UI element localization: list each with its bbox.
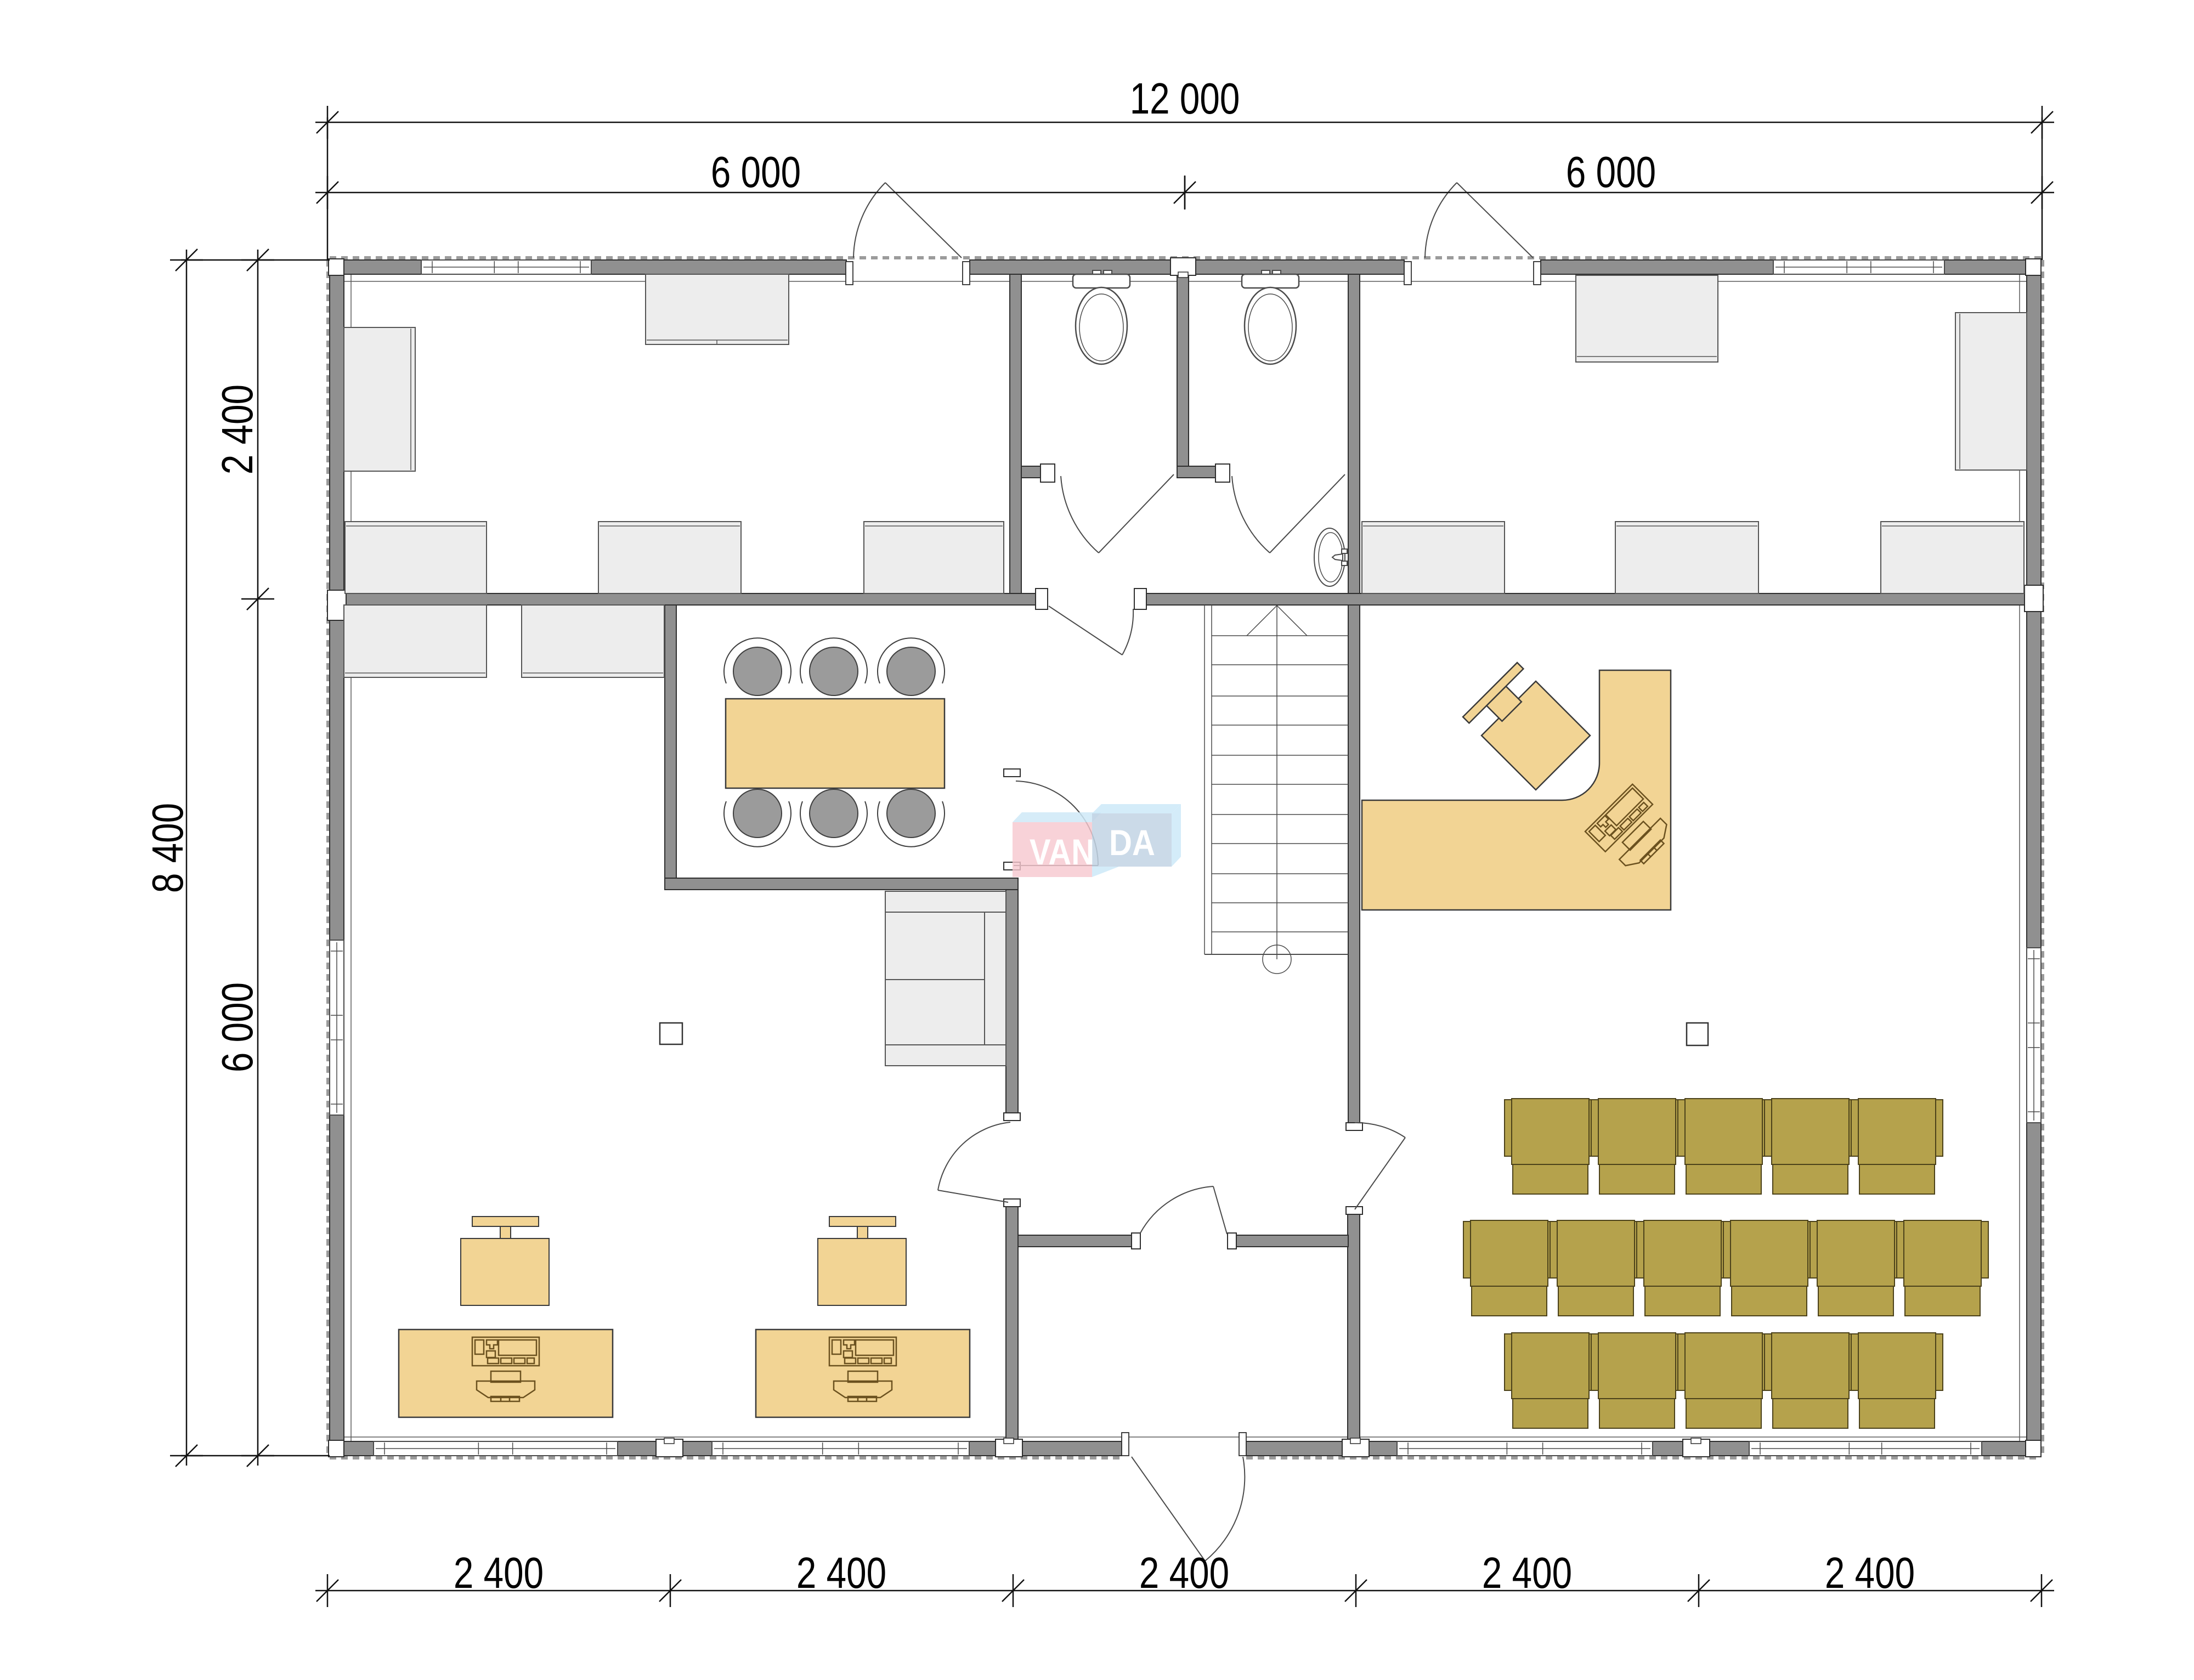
svg-text:2 400: 2 400 bbox=[1139, 1548, 1229, 1598]
svg-text:2 400: 2 400 bbox=[796, 1548, 886, 1598]
svg-text:12 000: 12 000 bbox=[1130, 74, 1240, 123]
svg-text:2 400: 2 400 bbox=[1482, 1548, 1572, 1598]
svg-text:2 400: 2 400 bbox=[454, 1548, 544, 1598]
svg-text:6 000: 6 000 bbox=[711, 148, 801, 197]
svg-text:8 400: 8 400 bbox=[143, 803, 193, 893]
svg-text:6 000: 6 000 bbox=[213, 982, 262, 1072]
svg-text:2 400: 2 400 bbox=[213, 384, 262, 474]
svg-text:DA: DA bbox=[1109, 823, 1155, 863]
svg-text:VAN: VAN bbox=[1030, 833, 1094, 873]
svg-text:6 000: 6 000 bbox=[1566, 148, 1656, 197]
svg-text:2 400: 2 400 bbox=[1825, 1548, 1915, 1598]
